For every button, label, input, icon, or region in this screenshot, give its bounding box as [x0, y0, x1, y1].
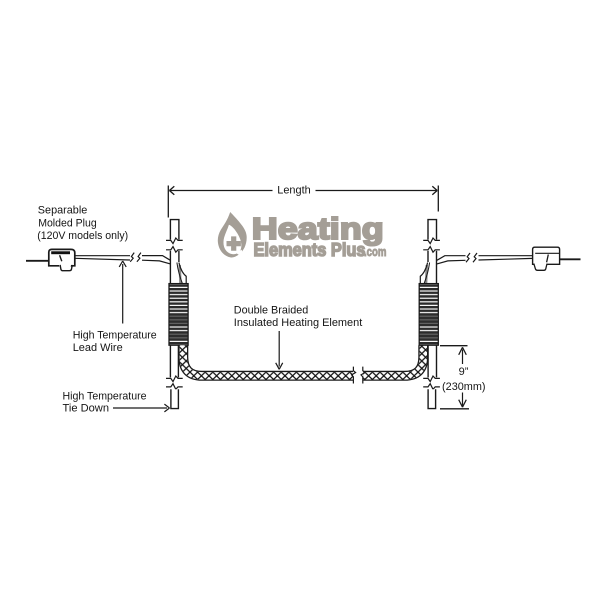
svg-text:Lead Wire: Lead Wire — [73, 342, 123, 354]
svg-text:High Temperature: High Temperature — [73, 329, 157, 341]
svg-text:Insulated Heating Element: Insulated Heating Element — [234, 317, 362, 329]
svg-text:Length: Length — [277, 185, 311, 197]
svg-text:Tie Down: Tie Down — [63, 403, 110, 415]
svg-text:Double Braided: Double Braided — [234, 304, 308, 316]
svg-text:(120V models only): (120V models only) — [37, 230, 128, 242]
svg-text:High Temperature: High Temperature — [63, 390, 147, 402]
svg-text:Separable: Separable — [38, 205, 88, 217]
svg-text:Molded Plug: Molded Plug — [38, 217, 96, 229]
svg-text:.com: .com — [364, 244, 387, 259]
svg-text:Elements Plus: Elements Plus — [254, 239, 366, 260]
svg-text:9”: 9” — [459, 366, 469, 378]
svg-text:(230mm): (230mm) — [442, 381, 486, 393]
